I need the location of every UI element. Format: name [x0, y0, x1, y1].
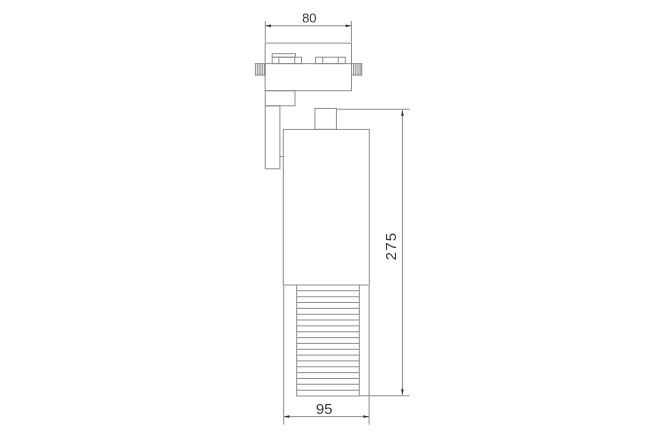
svg-text:275: 275	[383, 232, 400, 261]
svg-text:95: 95	[316, 401, 333, 418]
svg-text:80: 80	[302, 10, 316, 25]
